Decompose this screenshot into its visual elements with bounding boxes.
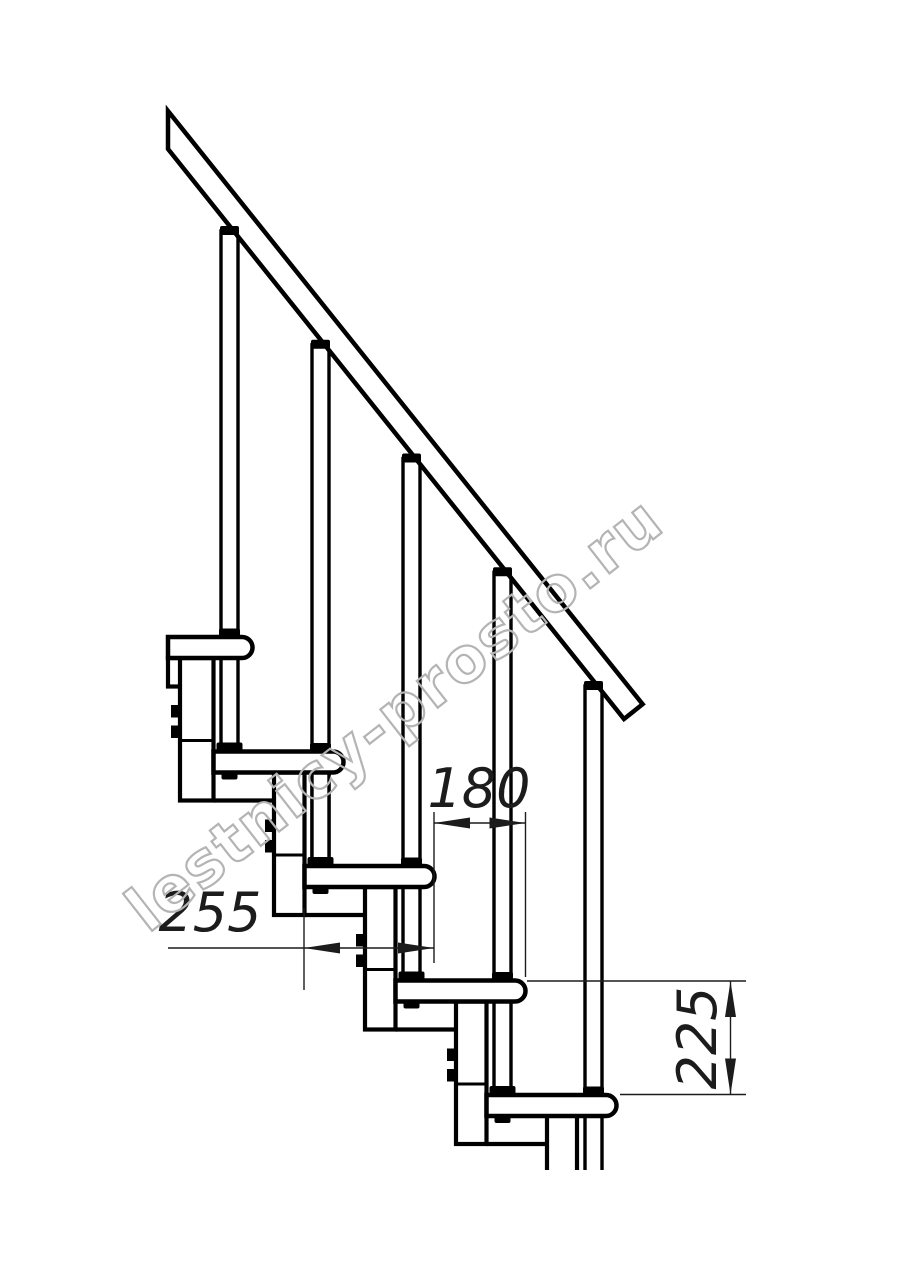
- tread-collar-1: [219, 629, 240, 638]
- tread-collar-3: [401, 858, 422, 867]
- rod-foot-4: [490, 1086, 516, 1095]
- rail-collar-3: [402, 454, 421, 463]
- rail-collar-1: [220, 226, 239, 235]
- rod-foot-3: [399, 972, 425, 981]
- tread-4: [396, 981, 526, 1002]
- tread-collar-4: [492, 972, 513, 981]
- tread-collar-5: [583, 1087, 604, 1096]
- rail-collar-4: [493, 567, 512, 576]
- rod-nut-1: [222, 773, 238, 780]
- dimension-tread-overlap: 180: [427, 757, 530, 977]
- dimension-label-225: 225: [666, 986, 729, 1089]
- staircase-drawing-canvas: 180 255 225 lestnicy-prosto.ru: [0, 0, 914, 1280]
- baluster-1: [221, 231, 238, 752]
- dimension-step-height: 225: [527, 981, 746, 1095]
- tread-1: [168, 637, 253, 658]
- rod-nut-4: [495, 1116, 511, 1123]
- rod-foot-1: [217, 743, 243, 752]
- rod-nut-2: [313, 887, 329, 894]
- technical-drawing-page: 180 255 225 lestnicy-prosto.ru: [0, 0, 914, 1280]
- arrowhead-left: [304, 943, 340, 954]
- tread-3: [305, 866, 435, 887]
- tread-5: [487, 1095, 617, 1116]
- dimension-label-180: 180: [427, 757, 530, 820]
- rod-nut-3: [404, 1002, 420, 1009]
- support-column-5: [547, 1116, 577, 1170]
- rod-foot-2: [308, 857, 334, 866]
- rail-collar-5: [584, 681, 603, 690]
- rail-collar-2: [311, 340, 330, 349]
